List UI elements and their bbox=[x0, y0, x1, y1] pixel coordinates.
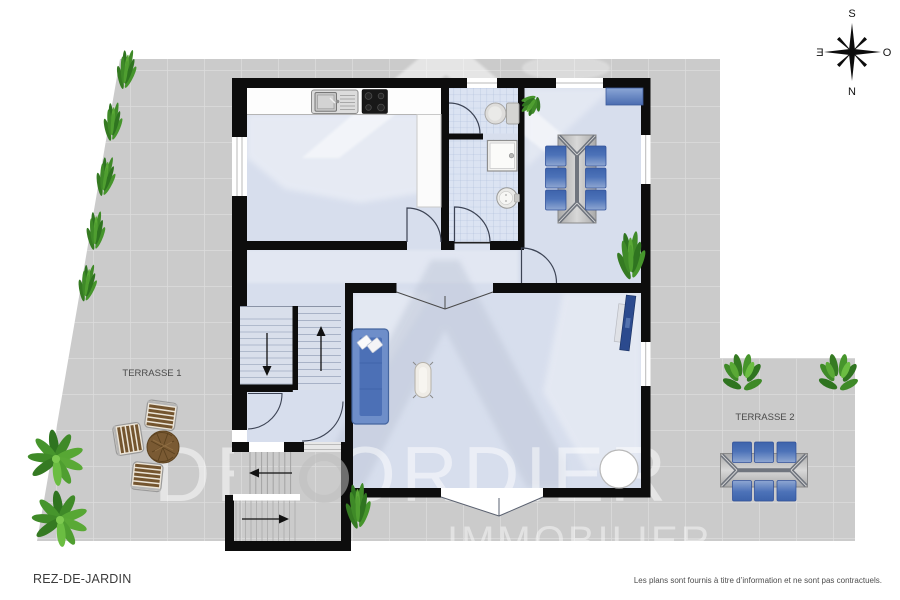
svg-text:REZ-DE-JARDIN: REZ-DE-JARDIN bbox=[33, 572, 131, 586]
svg-text:O: O bbox=[883, 47, 892, 59]
svg-text:S: S bbox=[848, 8, 855, 20]
svg-text:Les plans sont fournis à titre: Les plans sont fournis à titre d’informa… bbox=[634, 576, 882, 585]
svg-text:E: E bbox=[816, 47, 823, 59]
svg-text:IMMOBILIER: IMMOBILIER bbox=[447, 519, 713, 563]
svg-text:TERRASSE 1: TERRASSE 1 bbox=[122, 368, 181, 379]
svg-text:TERRASSE 2: TERRASSE 2 bbox=[735, 412, 794, 423]
svg-text:N: N bbox=[848, 86, 856, 98]
